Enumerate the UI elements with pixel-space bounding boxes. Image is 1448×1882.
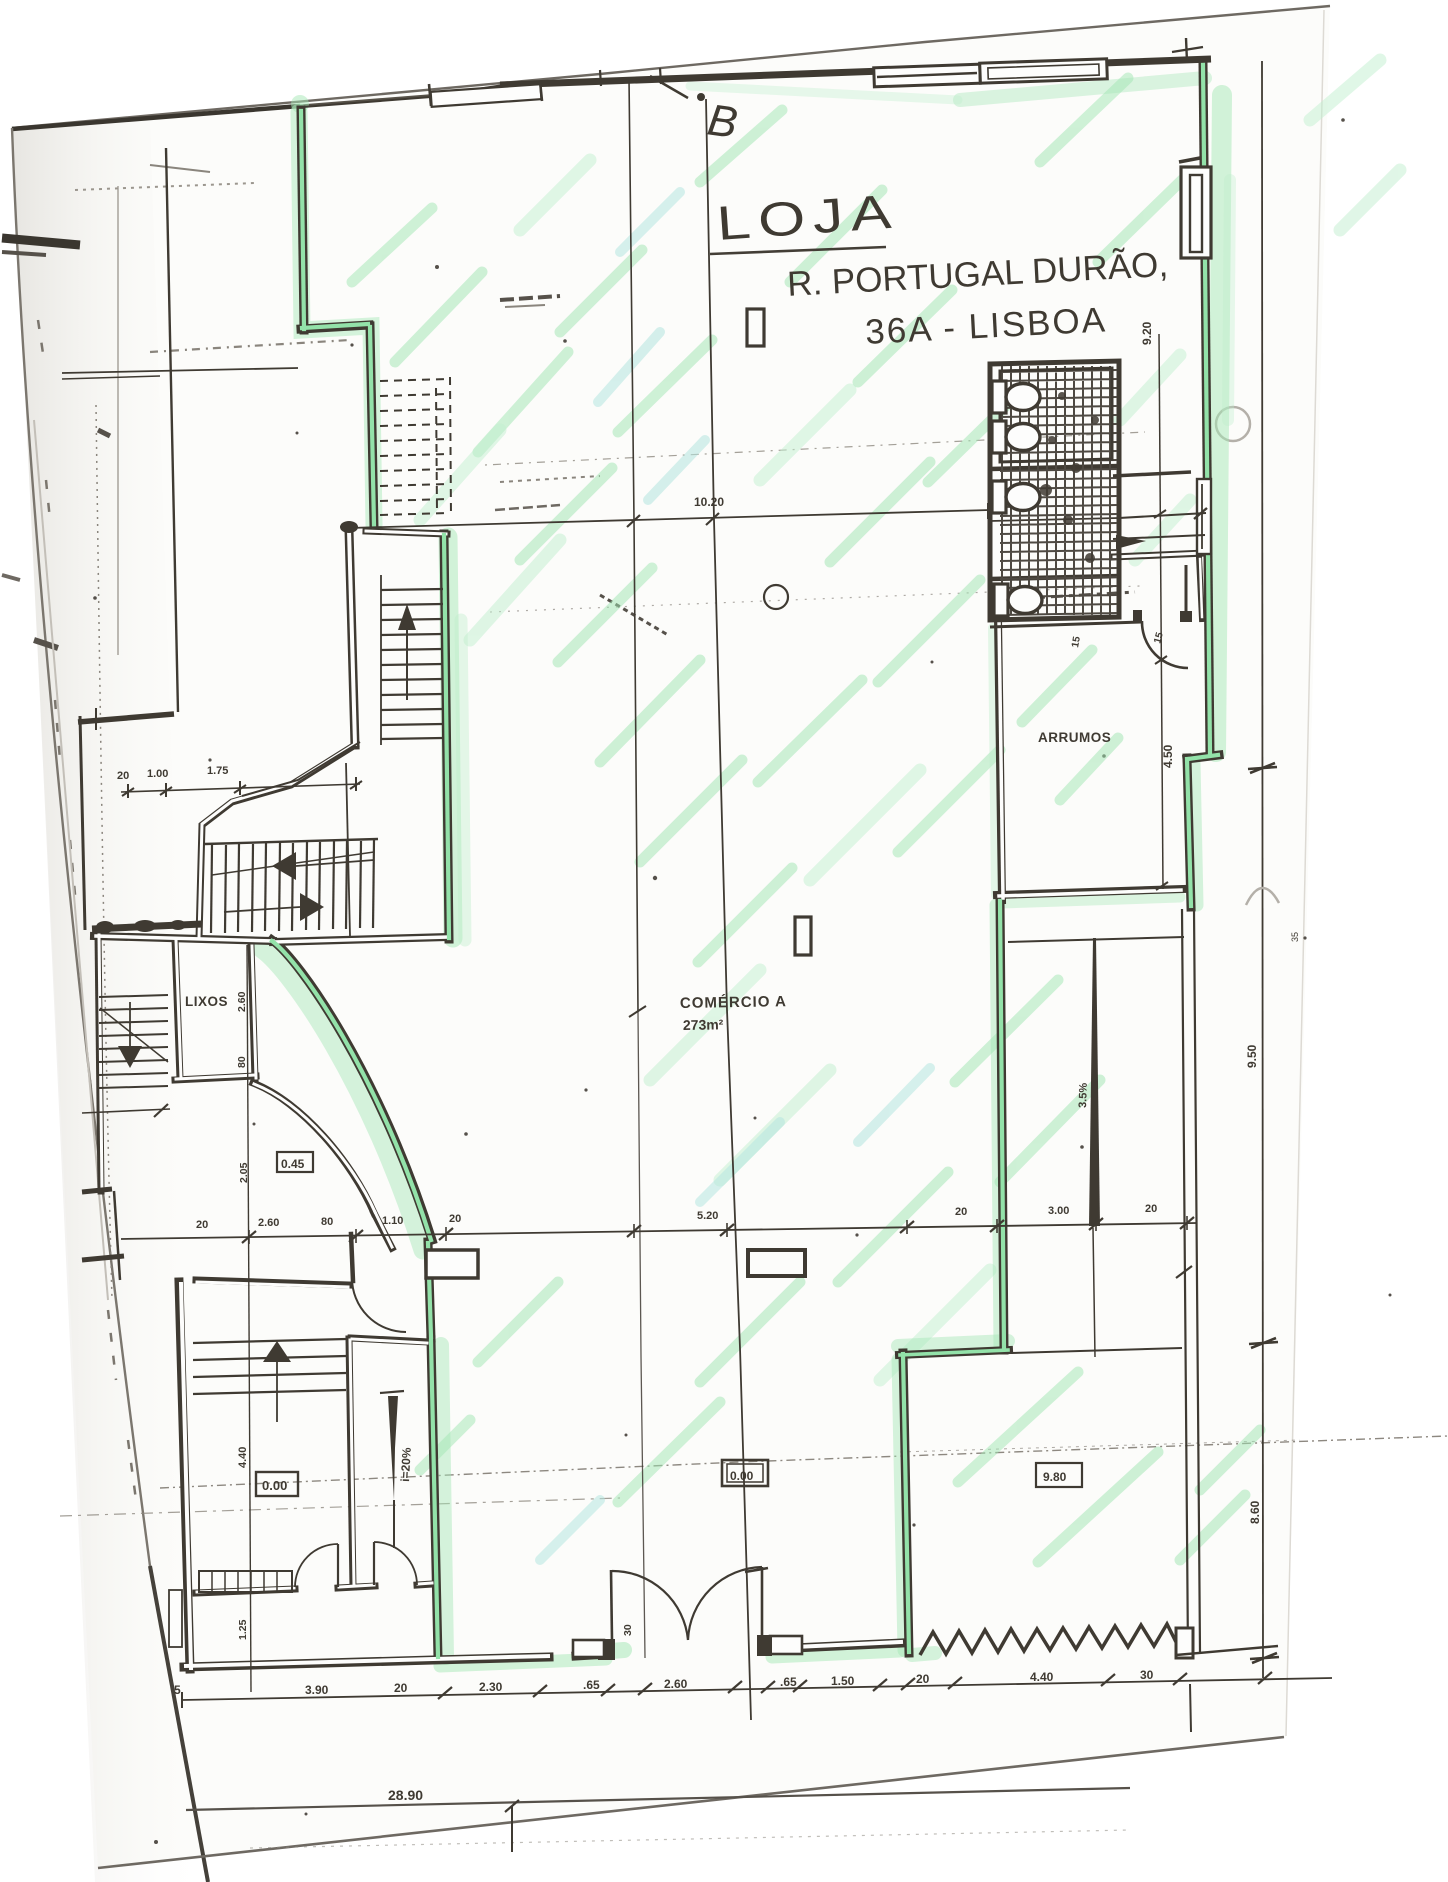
svg-text:9.50: 9.50 <box>1245 1044 1259 1068</box>
svg-text:5.20: 5.20 <box>697 1210 718 1222</box>
svg-text:0.00: 0.00 <box>730 1469 754 1483</box>
svg-text:1.25: 1.25 <box>237 1619 249 1640</box>
svg-text:20: 20 <box>394 1681 408 1695</box>
svg-text:3.90: 3.90 <box>305 1683 329 1697</box>
svg-text:.65: .65 <box>780 1675 797 1689</box>
svg-text:.65: .65 <box>583 1678 600 1692</box>
svg-text:2.30: 2.30 <box>479 1680 503 1694</box>
svg-text:20: 20 <box>916 1672 930 1686</box>
svg-text:2.60: 2.60 <box>258 1217 279 1229</box>
svg-text:273m²: 273m² <box>683 1016 724 1033</box>
svg-text:4.40: 4.40 <box>237 1447 249 1468</box>
svg-text:4.50: 4.50 <box>1161 744 1175 768</box>
svg-text:9.20: 9.20 <box>1140 321 1154 345</box>
svg-text:4.40: 4.40 <box>1030 1670 1054 1684</box>
svg-text:COMÉRCIO A: COMÉRCIO A <box>680 993 787 1012</box>
svg-text:LIXOS: LIXOS <box>185 994 228 1009</box>
svg-text:3.5%: 3.5% <box>1077 1082 1090 1108</box>
svg-text:28.90: 28.90 <box>388 1787 423 1803</box>
svg-text:3.00: 3.00 <box>1048 1205 1069 1217</box>
svg-text:30: 30 <box>1140 1668 1154 1682</box>
svg-text:2.60: 2.60 <box>664 1677 688 1691</box>
svg-text:80: 80 <box>321 1216 333 1228</box>
svg-text:20: 20 <box>196 1219 208 1231</box>
svg-text:2.05: 2.05 <box>238 1162 250 1183</box>
svg-text:35: 35 <box>1290 932 1300 942</box>
svg-text:1.00: 1.00 <box>147 768 168 780</box>
svg-text:0.45: 0.45 <box>281 1157 305 1171</box>
svg-text:20: 20 <box>955 1206 967 1218</box>
svg-text:20: 20 <box>117 770 129 782</box>
svg-text:80: 80 <box>236 1056 248 1068</box>
svg-text:i=20%: i=20% <box>398 1447 414 1482</box>
svg-text:30: 30 <box>622 1624 634 1636</box>
svg-text:1.75: 1.75 <box>207 765 228 777</box>
svg-text:20: 20 <box>449 1213 461 1225</box>
svg-text:9.80: 9.80 <box>1043 1470 1067 1484</box>
svg-text:5: 5 <box>174 1683 181 1697</box>
svg-text:20: 20 <box>1145 1203 1157 1215</box>
svg-text:8.60: 8.60 <box>1248 1500 1262 1524</box>
svg-text:2.60: 2.60 <box>236 991 248 1012</box>
svg-text:10.20: 10.20 <box>694 495 724 509</box>
svg-text:ARRUMOS: ARRUMOS <box>1038 730 1111 745</box>
svg-text:1.50: 1.50 <box>831 1674 855 1688</box>
svg-text:1.10: 1.10 <box>382 1215 403 1227</box>
svg-text:0.00: 0.00 <box>262 1478 287 1493</box>
